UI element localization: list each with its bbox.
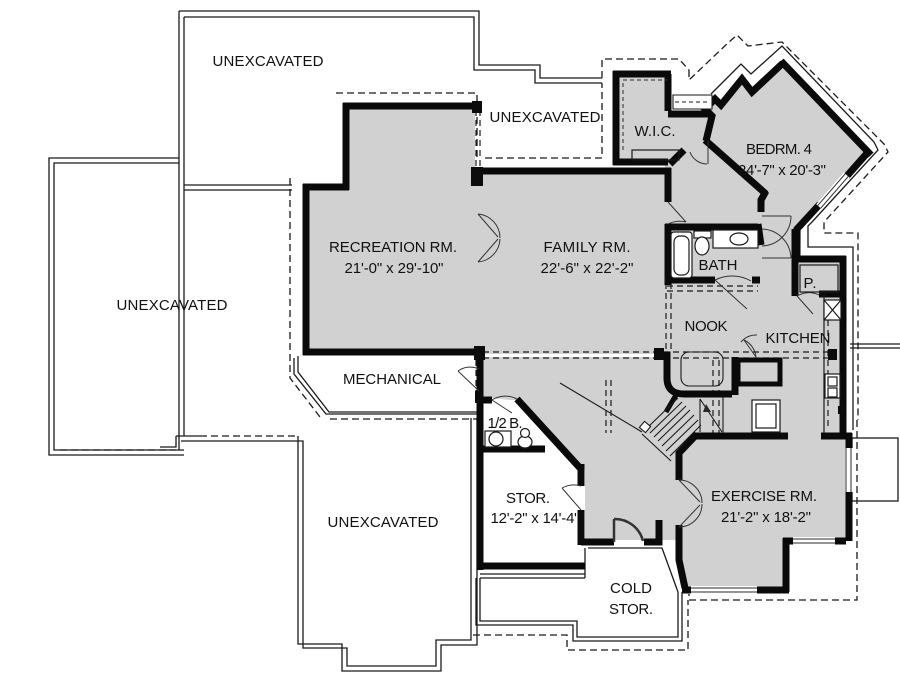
svg-text:UNEXCAVATED: UNEXCAVATED — [328, 514, 439, 531]
svg-text:MECHANICAL: MECHANICAL — [343, 371, 441, 388]
svg-text:12'-2" x 14'-4": 12'-2" x 14'-4" — [491, 510, 580, 527]
svg-text:21'-2" x 18'-2": 21'-2" x 18'-2" — [721, 509, 811, 526]
svg-text:P.: P. — [804, 275, 817, 292]
svg-text:BEDRM. 4: BEDRM. 4 — [746, 141, 812, 158]
svg-text:22'-6" x 22'-2": 22'-6" x 22'-2" — [541, 260, 634, 277]
svg-text:UNEXCAVATED: UNEXCAVATED — [490, 109, 601, 126]
svg-text:EXERCISE RM.: EXERCISE RM. — [711, 488, 817, 505]
svg-text:UNEXCAVATED: UNEXCAVATED — [213, 53, 324, 70]
svg-text:COLD: COLD — [610, 580, 652, 597]
svg-text:STOR.: STOR. — [506, 490, 550, 507]
svg-text:RECREATION RM.: RECREATION RM. — [329, 239, 457, 256]
svg-text:FAMILY RM.: FAMILY RM. — [544, 239, 631, 256]
svg-text:UNEXCAVATED: UNEXCAVATED — [117, 297, 228, 314]
svg-text:NOOK: NOOK — [685, 318, 728, 335]
svg-text:1/2 B.: 1/2 B. — [488, 415, 523, 432]
svg-text:STOR.: STOR. — [609, 601, 653, 618]
svg-text:21'-0" x 29'-10": 21'-0" x 29'-10" — [345, 260, 444, 277]
svg-text:24'-7" x 20'-3": 24'-7" x 20'-3" — [738, 162, 826, 179]
svg-text:W.I.C.: W.I.C. — [635, 123, 676, 140]
svg-text:KITCHEN: KITCHEN — [766, 330, 831, 347]
svg-text:BATH: BATH — [699, 257, 738, 274]
